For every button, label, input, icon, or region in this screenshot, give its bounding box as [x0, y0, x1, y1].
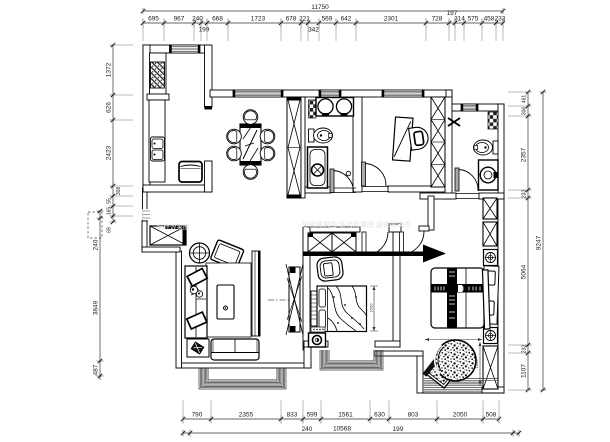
svg-text:306: 306 [522, 107, 528, 116]
svg-text:1372: 1372 [106, 62, 113, 77]
svg-text:233: 233 [522, 190, 528, 199]
svg-text:5064: 5064 [521, 264, 528, 279]
svg-text:55: 55 [107, 198, 113, 204]
svg-text:233: 233 [495, 16, 506, 23]
svg-text:240: 240 [192, 16, 203, 23]
svg-text:2423: 2423 [106, 145, 113, 160]
svg-text:197: 197 [447, 10, 458, 17]
svg-text:308: 308 [116, 187, 122, 196]
svg-text:1107: 1107 [521, 364, 528, 378]
svg-text:803: 803 [408, 412, 419, 419]
svg-text:2301: 2301 [384, 16, 399, 23]
svg-text:233: 233 [522, 345, 528, 354]
svg-text:833: 833 [287, 412, 298, 419]
svg-text:967: 967 [174, 16, 185, 23]
svg-text:342: 342 [308, 27, 319, 34]
svg-text:668: 668 [212, 16, 223, 23]
svg-text:221: 221 [299, 16, 310, 23]
svg-text:678: 678 [286, 16, 297, 23]
svg-text:240: 240 [93, 239, 100, 250]
svg-text:728: 728 [432, 16, 443, 23]
svg-text:1723: 1723 [251, 16, 266, 23]
svg-text:1500: 1500 [474, 359, 479, 369]
svg-text:165: 165 [107, 207, 113, 216]
svg-text:2050: 2050 [453, 412, 468, 419]
svg-text:199: 199 [199, 27, 210, 34]
svg-text:9247: 9247 [536, 235, 543, 250]
svg-text:626: 626 [106, 102, 113, 113]
svg-text:11750: 11750 [311, 4, 329, 11]
svg-text:508: 508 [486, 412, 497, 419]
svg-text:1500: 1500 [369, 303, 374, 313]
svg-text:1561: 1561 [338, 412, 353, 419]
svg-text:10568: 10568 [333, 426, 351, 433]
svg-text:630: 630 [374, 412, 385, 419]
svg-text:199: 199 [393, 426, 404, 433]
svg-text:695: 695 [148, 16, 159, 23]
svg-text:2355: 2355 [239, 412, 254, 419]
svg-text:569: 569 [322, 16, 333, 23]
svg-text:487: 487 [93, 364, 100, 375]
svg-text:642: 642 [341, 16, 352, 23]
svg-text:575: 575 [468, 16, 479, 23]
svg-text:3849: 3849 [93, 300, 100, 315]
svg-text:240: 240 [302, 426, 313, 433]
svg-text:599: 599 [307, 412, 318, 419]
svg-text:2357: 2357 [521, 147, 528, 162]
svg-text:790: 790 [192, 412, 203, 419]
svg-text:装修效果图: 装修效果图 [157, 222, 190, 231]
svg-text:458: 458 [484, 16, 495, 23]
svg-text:装修效果图 装修效果图 装修效果图: 装修效果图 装修效果图 装修效果图 [302, 220, 411, 229]
svg-text:69: 69 [107, 227, 113, 233]
svg-text:461: 461 [522, 95, 528, 104]
